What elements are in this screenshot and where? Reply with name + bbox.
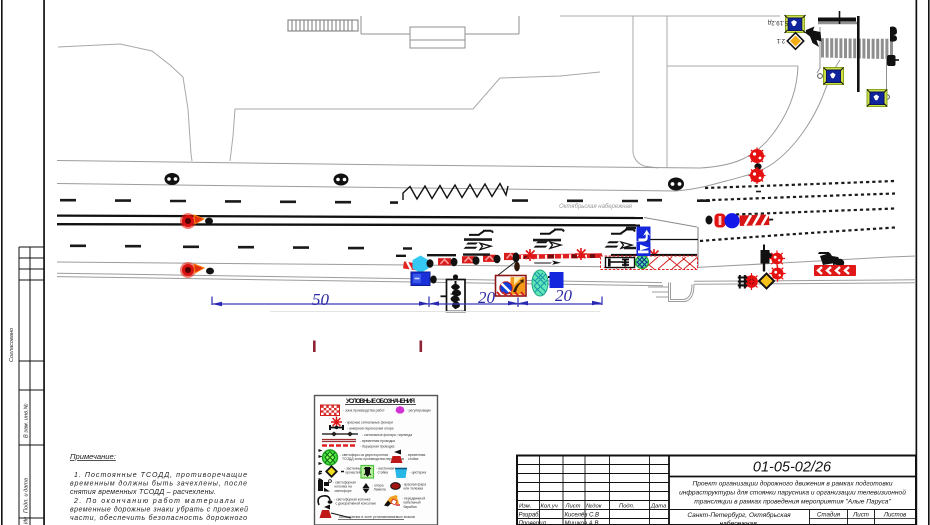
svg-text:барабан: барабан bbox=[404, 505, 417, 509]
svg-text:Изм.: Изм. bbox=[519, 504, 531, 510]
svg-text:Лист: Лист bbox=[565, 504, 581, 510]
svg-text:- цистерна: - цистерна bbox=[410, 471, 427, 475]
svg-text:стойка: стойка bbox=[408, 457, 419, 461]
svg-text:Подп. и дата: Подп. и дата bbox=[24, 478, 30, 513]
svg-text:Дата: Дата bbox=[650, 504, 667, 510]
svg-text:20: 20 bbox=[478, 288, 496, 307]
svg-text:Согласовано: Согласовано bbox=[9, 328, 15, 362]
svg-text:В зам. инв.№: В зам. инв.№ bbox=[24, 403, 30, 438]
svg-text:снятия временных ТСОДД – расче: снятия временных ТСОДД – расчехлены. bbox=[70, 489, 216, 496]
svg-text:УСЛОВНЫЕ ОБОЗНАЧЕНИЯ: УСЛОВНЫЕ ОБОЗНАЧЕНИЯ bbox=[346, 398, 416, 405]
svg-text:части, обеспечить безопаснос: части, обеспечить безопасность дорожного bbox=[70, 514, 247, 522]
svg-text:Стадия: Стадия bbox=[817, 512, 841, 519]
svg-text:Проект организации дорожного д: Проект организации дорожного движения в … bbox=[692, 480, 892, 488]
svg-text:стойка: стойка bbox=[378, 471, 389, 475]
svg-text:набережная.: набережная. bbox=[719, 520, 758, 525]
svg-text:- временная проводка: - временная проводка bbox=[360, 439, 395, 443]
svg-text:Мишков А.В: Мишков А.В bbox=[565, 521, 599, 525]
svg-text:Киселёв С.В: Киселёв С.В bbox=[565, 513, 600, 519]
svg-text:трансляции в рамках проведения: трансляции в рамках проведения мероприят… bbox=[694, 498, 891, 506]
svg-text:или тележка: или тележка bbox=[404, 487, 424, 491]
svg-text:кронштейн: кронштейн bbox=[346, 471, 363, 475]
svg-text:1. Постоянные ТСОДД, против: 1. Постоянные ТСОДД, противоречащие bbox=[74, 472, 247, 479]
svg-text:Листов: Листов bbox=[883, 512, 907, 519]
svg-text:Разраб.: Разраб. bbox=[519, 513, 541, 519]
svg-text:- красные сигнальные фонари: - красные сигнальные фонари bbox=[345, 421, 393, 425]
svg-text:2.1: 2.1 bbox=[776, 37, 785, 43]
svg-text:с декоративной консолью: с декоративной консолью bbox=[336, 502, 377, 506]
svg-text:№док: №док bbox=[586, 504, 602, 510]
svg-text:20: 20 bbox=[555, 286, 573, 305]
svg-text:обозначения в зоне устанавлива: обозначения в зоне устанавливаемых знако… bbox=[339, 515, 415, 519]
svg-text:01-05-02/26: 01-05-02/26 bbox=[753, 460, 832, 476]
svg-text:Кол.уч: Кол.уч bbox=[541, 504, 558, 510]
svg-text:Ламела: Ламела bbox=[374, 488, 386, 492]
svg-text:Лист: Лист bbox=[852, 512, 869, 519]
svg-text:Подп.: Подп. bbox=[619, 504, 634, 510]
svg-text:Санкт-Петербург, Октябрьская: Санкт-Петербург, Октябрьская bbox=[687, 511, 791, 519]
svg-text:Проверил: Проверил bbox=[519, 521, 547, 525]
svg-text:- регулировщик: - регулировщик bbox=[407, 409, 432, 413]
svg-text:временным должны быть зачех: временным должны быть зачехлены, после bbox=[70, 480, 247, 488]
svg-text:светофоре: светофоре bbox=[335, 489, 352, 493]
svg-text:временные дорожные знаки убрат: временные дорожные знаки убрать с проезж… bbox=[70, 505, 248, 513]
svg-text:- анкерная переносная опора: - анкерная переносная опора bbox=[347, 427, 394, 431]
svg-text:- барьерная проводка: - барьерная проводка bbox=[360, 445, 394, 449]
svg-text:50: 50 bbox=[312, 290, 330, 309]
svg-text:Ин: Ин bbox=[24, 517, 30, 524]
svg-text:5.19.2д: 5.19.2д bbox=[767, 19, 788, 25]
svg-text:Примечание:: Примечание: bbox=[70, 452, 116, 461]
svg-text:- зона производства работ: - зона производства работ bbox=[343, 409, 385, 413]
svg-text:Октябрьская набережная: Октябрьская набережная bbox=[559, 204, 633, 210]
svg-text:- сигнальные фонари, гирлянда: - сигнальные фонари, гирлянда bbox=[362, 433, 412, 437]
svg-text:инфраструктуры для стоянки пар: инфраструктуры для стоянки парусника и о… bbox=[679, 489, 906, 497]
